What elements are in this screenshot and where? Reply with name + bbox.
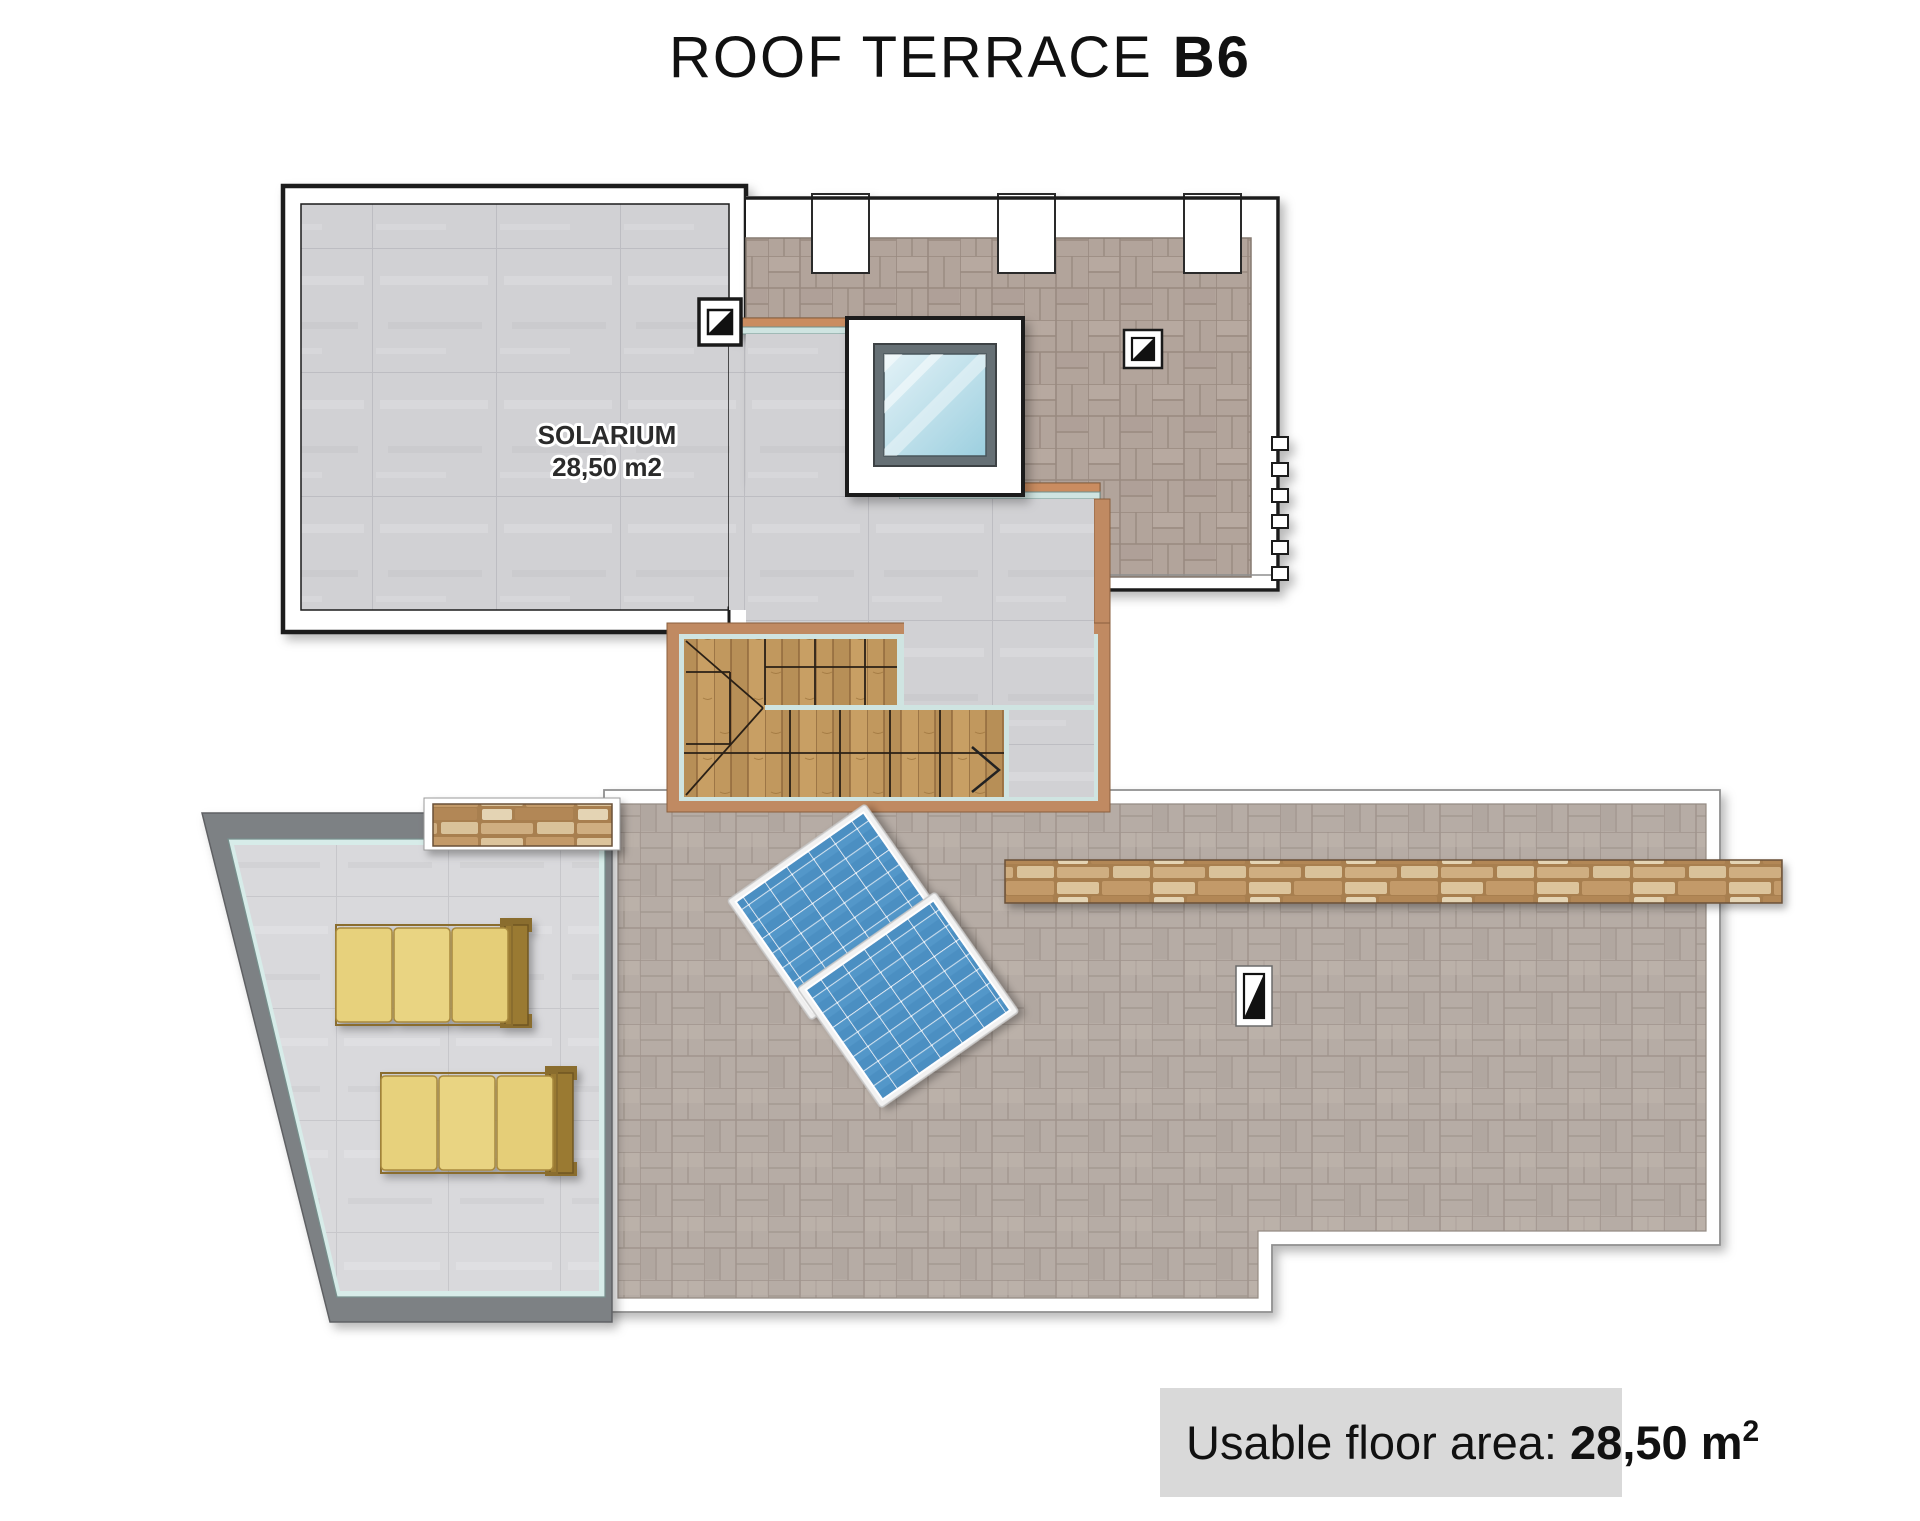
page-title: ROOF TERRACEB6 bbox=[669, 25, 1251, 90]
drain-icon bbox=[699, 299, 741, 345]
stone-wall-left bbox=[424, 798, 620, 850]
stone-wall-right bbox=[1005, 860, 1782, 903]
usable-area-box: Usable floor area: 28,50 m2 bbox=[1160, 1388, 1759, 1497]
sun-lounger bbox=[336, 918, 532, 1028]
floorplan-page: ROOF TERRACEB6 bbox=[0, 0, 1920, 1521]
solarium-area-label: 28,50 m2 bbox=[552, 452, 662, 482]
drain-icon bbox=[1124, 330, 1162, 368]
usable-area-text: Usable floor area: 28,50 m2 bbox=[1186, 1415, 1759, 1469]
sun-lounger bbox=[381, 1066, 577, 1176]
floorplan-drawing: ROOF TERRACEB6 bbox=[0, 0, 1920, 1521]
solarium-label: SOLARIUM bbox=[538, 420, 677, 450]
drain-icon bbox=[1236, 966, 1272, 1026]
